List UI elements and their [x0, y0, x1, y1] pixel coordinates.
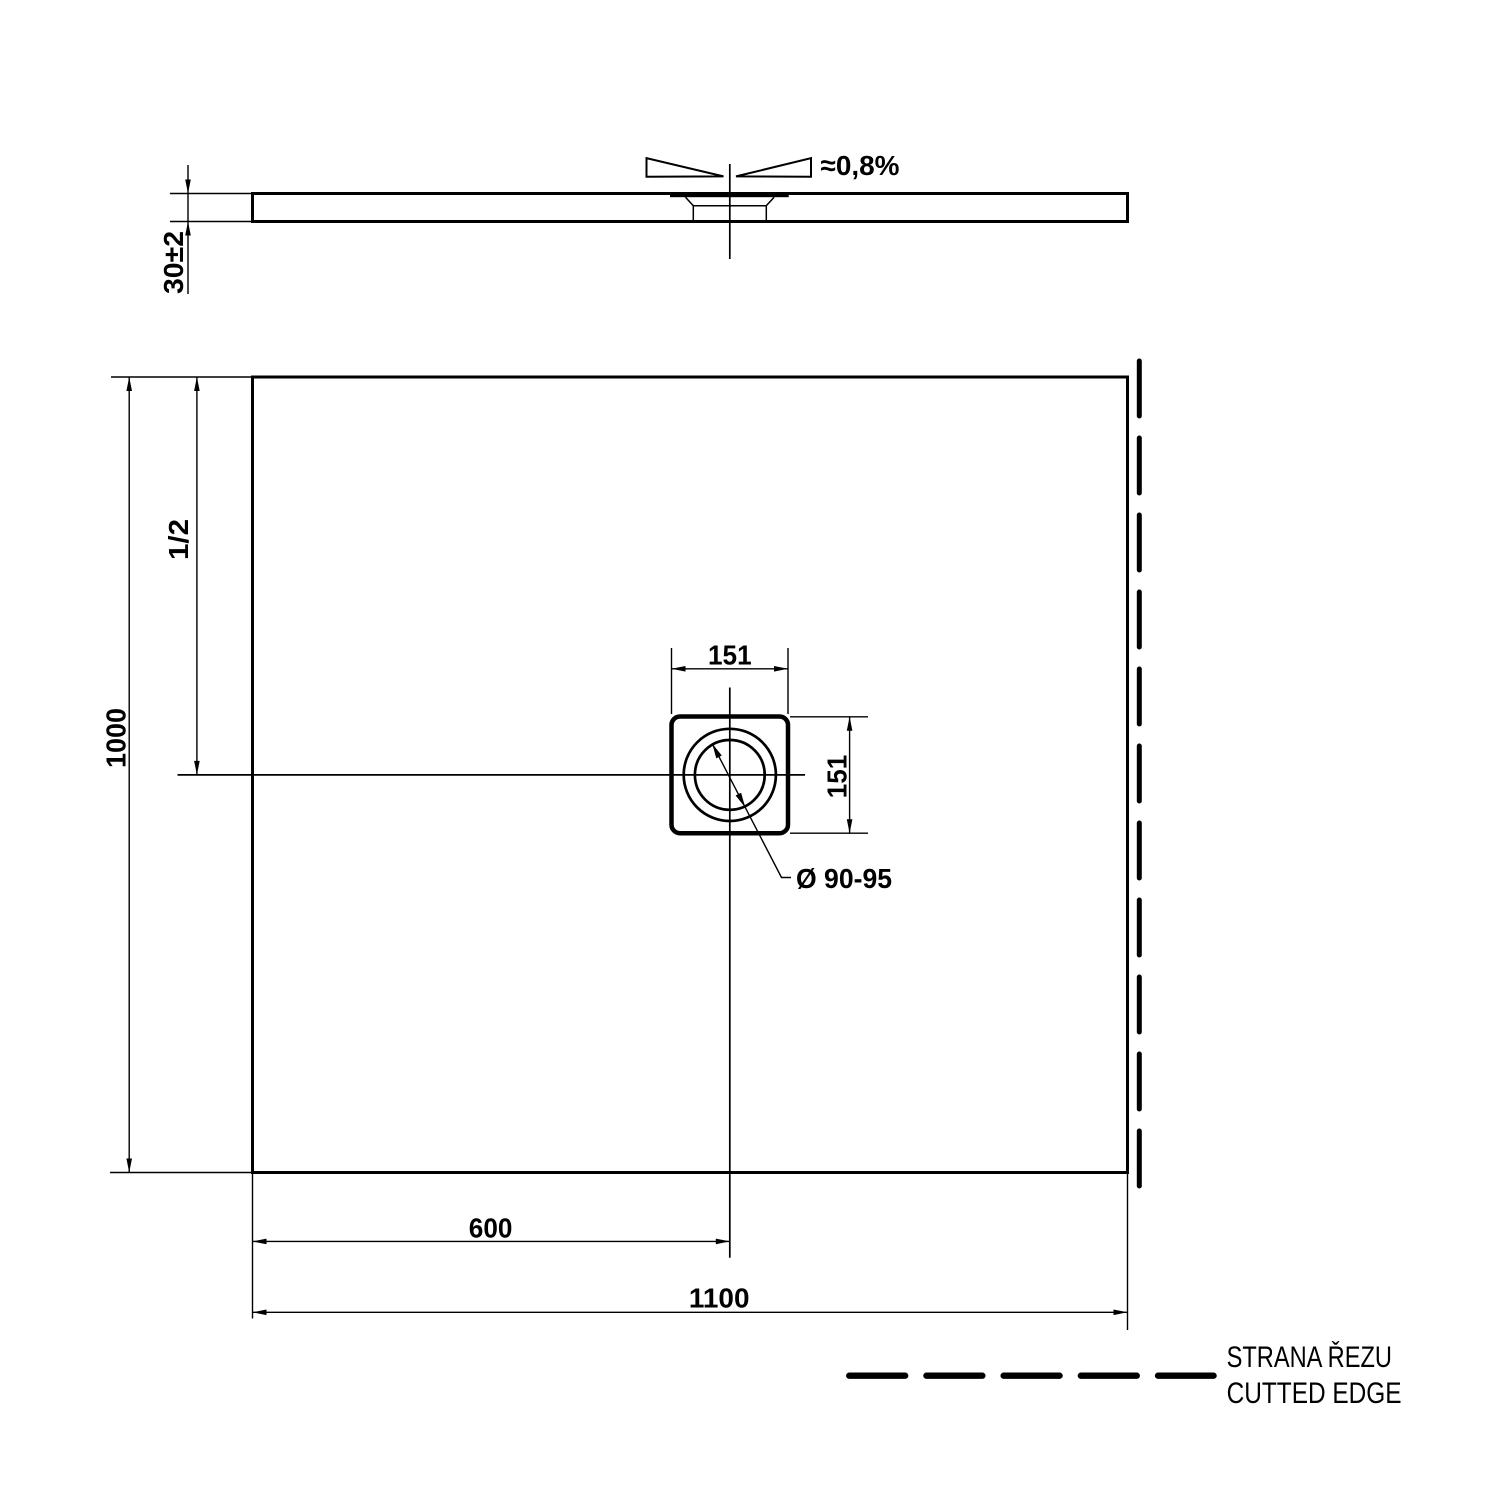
svg-text:≈0,8%: ≈0,8% — [821, 150, 900, 181]
svg-text:151: 151 — [822, 755, 853, 799]
svg-text:151: 151 — [708, 640, 752, 671]
svg-text:STRANA ŘEZU: STRANA ŘEZU — [1227, 1341, 1392, 1374]
svg-text:1/2: 1/2 — [163, 519, 194, 560]
svg-text:1000: 1000 — [100, 708, 131, 768]
svg-text:1100: 1100 — [689, 1282, 750, 1313]
svg-text:600: 600 — [469, 1212, 513, 1243]
svg-text:Ø 90-95: Ø 90-95 — [796, 863, 892, 894]
svg-text:30±2: 30±2 — [158, 231, 189, 294]
svg-text:CUTTED EDGE: CUTTED EDGE — [1227, 1377, 1402, 1410]
